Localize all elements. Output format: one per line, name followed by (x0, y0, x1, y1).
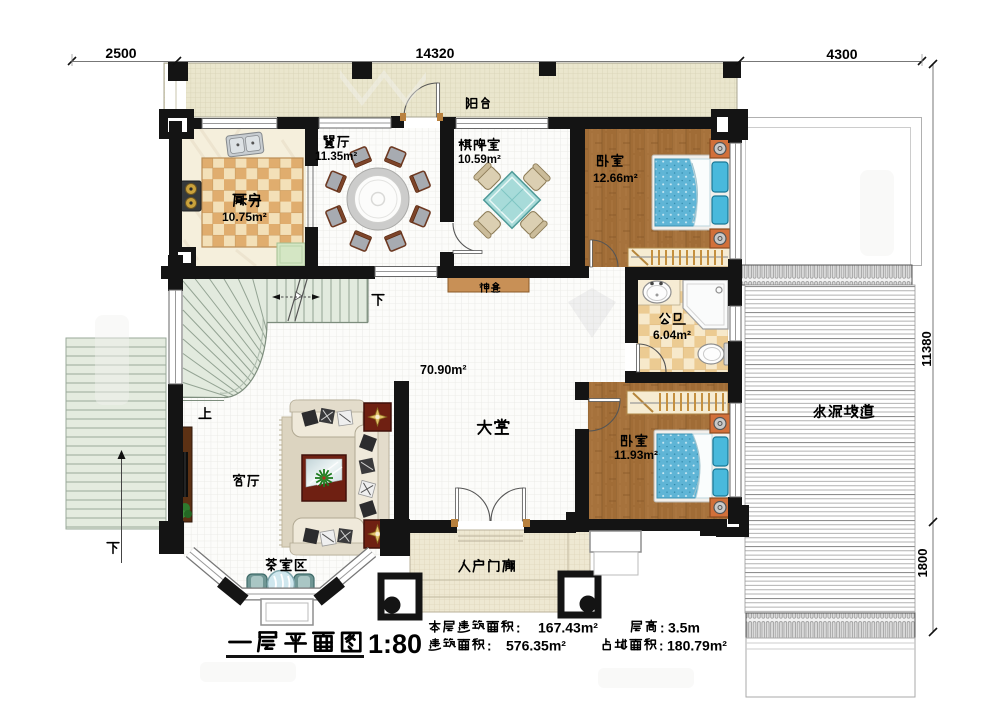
svg-text:12.66m²: 12.66m² (593, 171, 638, 185)
svg-text:167.43m²: 167.43m² (538, 620, 598, 636)
svg-text:4300: 4300 (826, 46, 857, 62)
svg-text:1:80: 1:80 (368, 629, 422, 659)
svg-text:576.35m²: 576.35m² (506, 638, 566, 654)
svg-text:1800: 1800 (915, 549, 930, 578)
svg-text:11.35m²: 11.35m² (315, 151, 357, 163)
svg-text:14320: 14320 (416, 45, 455, 61)
svg-text:70.90m²: 70.90m² (420, 363, 467, 377)
svg-text:10.75m²: 10.75m² (222, 210, 267, 224)
svg-text::: : (660, 621, 665, 636)
svg-text:6.04m²: 6.04m² (653, 328, 691, 342)
svg-text::: : (659, 639, 664, 654)
svg-text:3.5m: 3.5m (668, 620, 700, 636)
svg-text::: : (487, 639, 492, 654)
svg-text:180.79m²: 180.79m² (667, 638, 727, 654)
svg-text::: : (516, 621, 521, 636)
svg-text:2500: 2500 (105, 45, 136, 61)
svg-text:11380: 11380 (919, 331, 934, 366)
svg-text:10.59m²: 10.59m² (458, 154, 501, 166)
svg-text:11.93m²: 11.93m² (614, 448, 658, 462)
